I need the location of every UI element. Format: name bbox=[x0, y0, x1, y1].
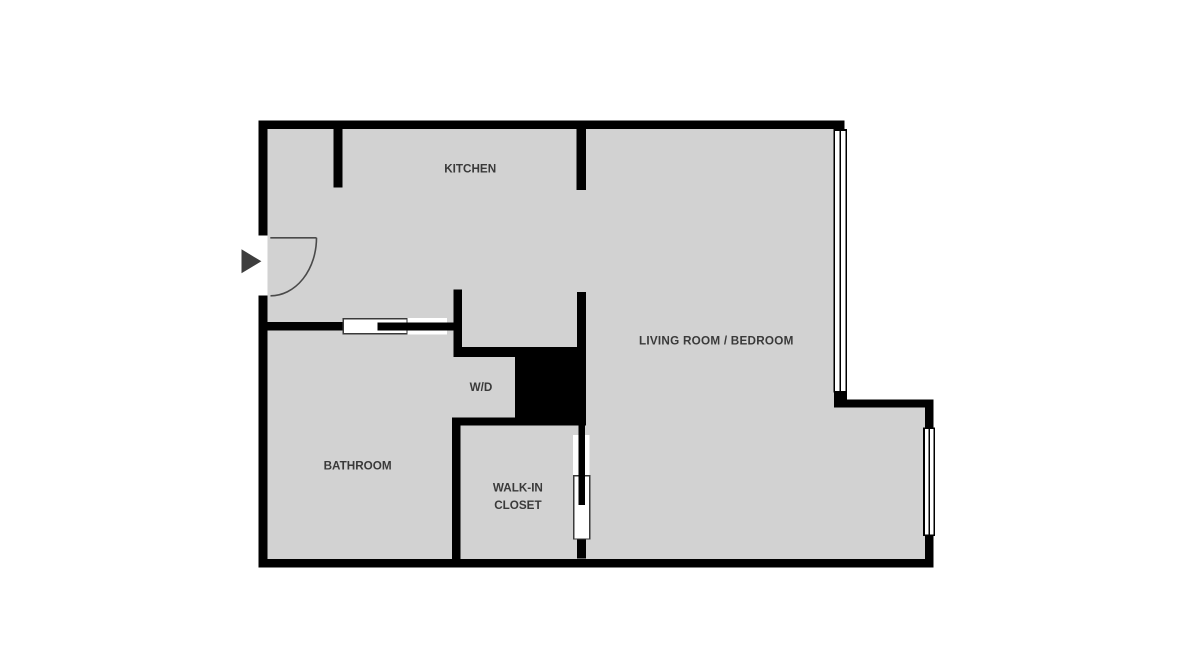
svg-text:BATHROOM: BATHROOM bbox=[324, 460, 392, 473]
svg-text:CLOSET: CLOSET bbox=[494, 499, 542, 512]
svg-text:LIVING ROOM / BEDROOM: LIVING ROOM / BEDROOM bbox=[639, 334, 794, 347]
svg-text:WALK-IN: WALK-IN bbox=[493, 482, 543, 495]
svg-text:KITCHEN: KITCHEN bbox=[444, 163, 496, 176]
svg-text:W/D: W/D bbox=[470, 381, 493, 394]
